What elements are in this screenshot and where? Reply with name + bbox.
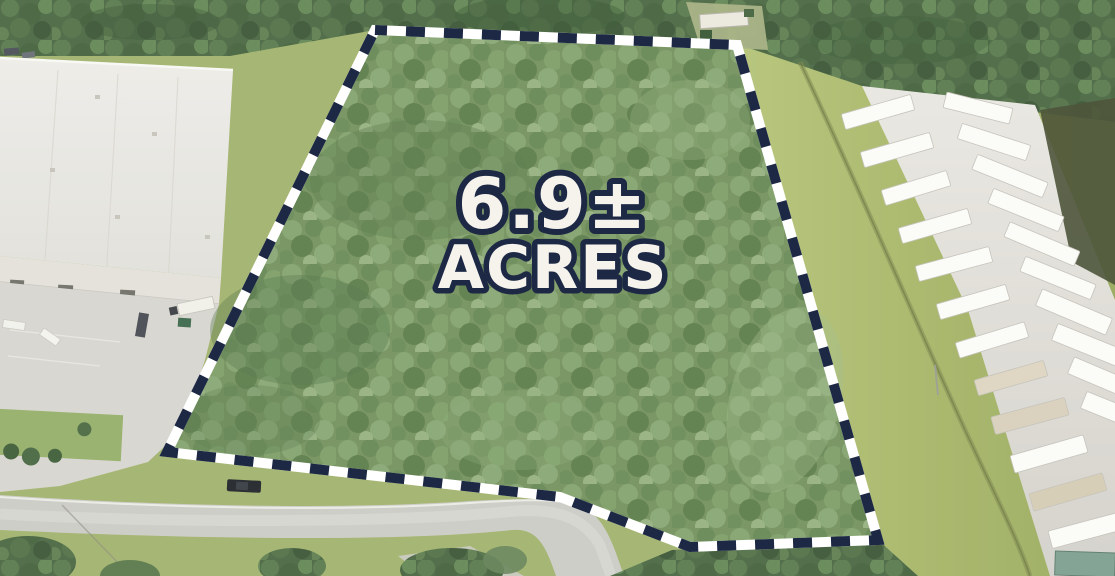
aerial-photo: 6.9± ACRES [0,0,1115,576]
acreage-unit: ACRES [438,233,669,303]
acreage-label: 6.9± ACRES [438,163,669,303]
aerial-scene: 6.9± ACRES [0,0,1115,576]
